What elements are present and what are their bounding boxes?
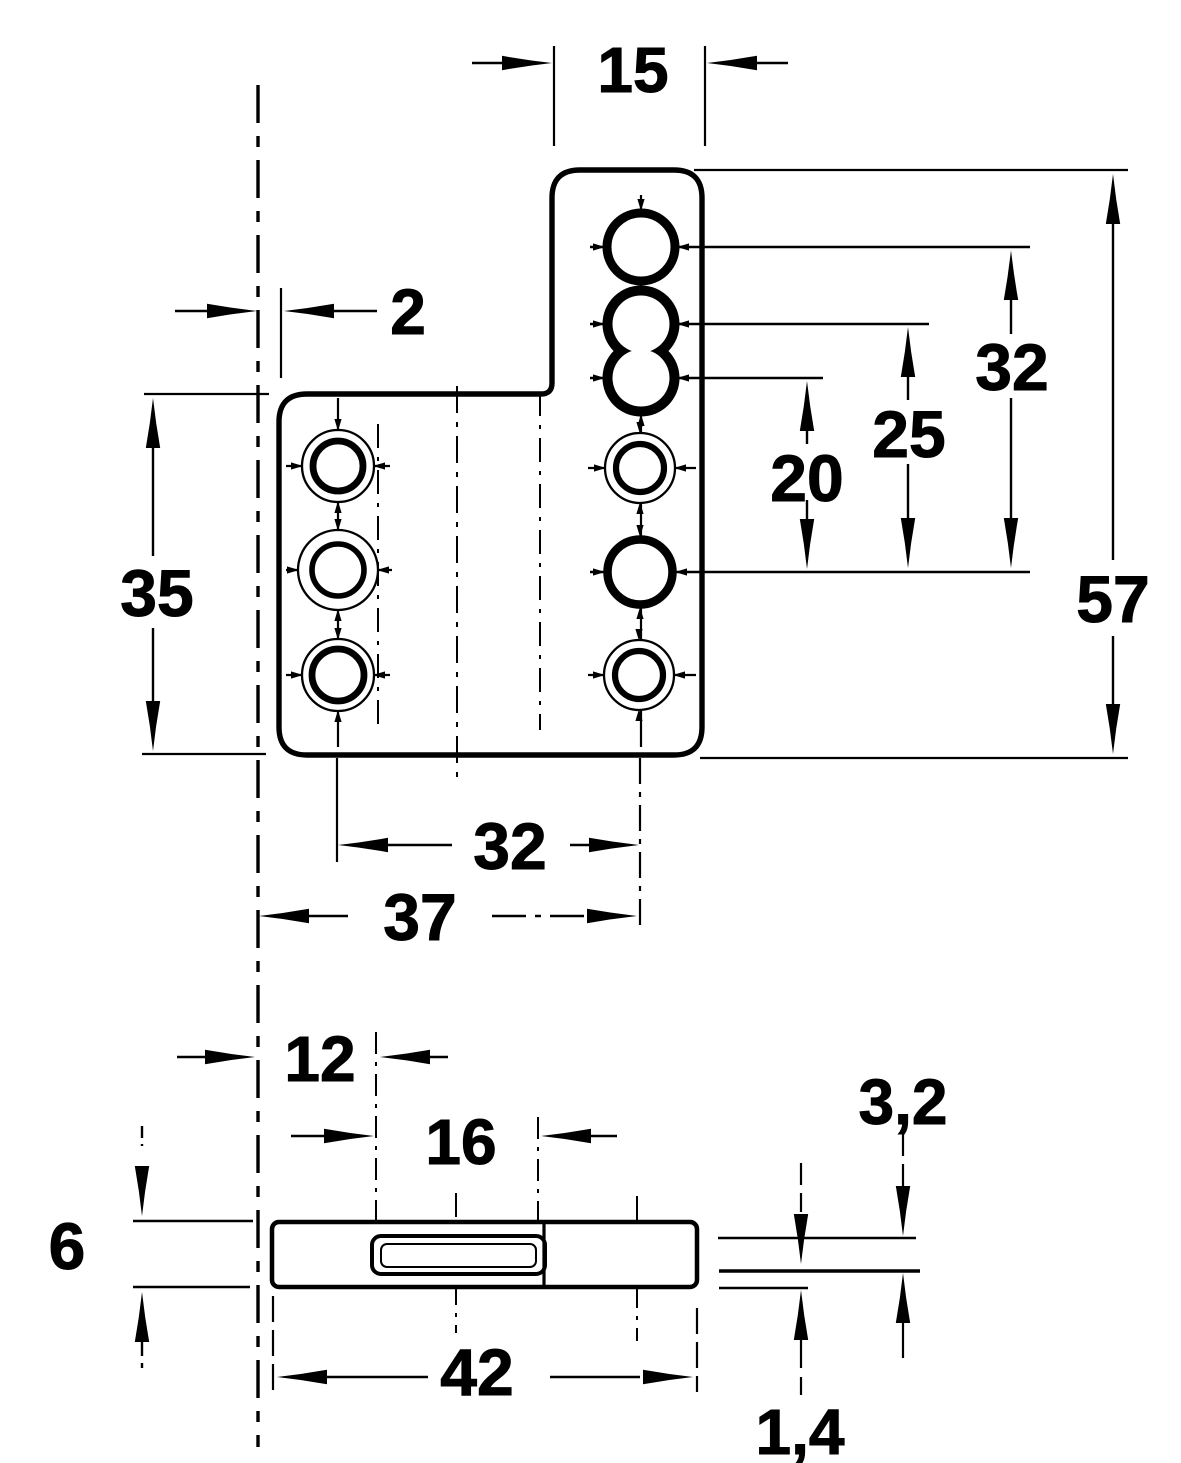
svg-text:20: 20 [770,441,843,515]
svg-text:37: 37 [383,880,456,954]
svg-text:2: 2 [390,276,426,348]
svg-text:35: 35 [120,556,193,630]
svg-text:15: 15 [597,34,668,106]
svg-text:42: 42 [440,1335,513,1409]
svg-text:1,4: 1,4 [756,1396,845,1463]
svg-text:16: 16 [425,1106,496,1178]
svg-text:25: 25 [872,397,945,471]
svg-text:32: 32 [975,330,1048,404]
svg-text:32: 32 [473,809,546,883]
svg-text:57: 57 [1076,562,1149,636]
svg-text:6: 6 [49,1209,86,1283]
svg-text:12: 12 [284,1023,355,1095]
svg-text:3,2: 3,2 [859,1066,948,1138]
